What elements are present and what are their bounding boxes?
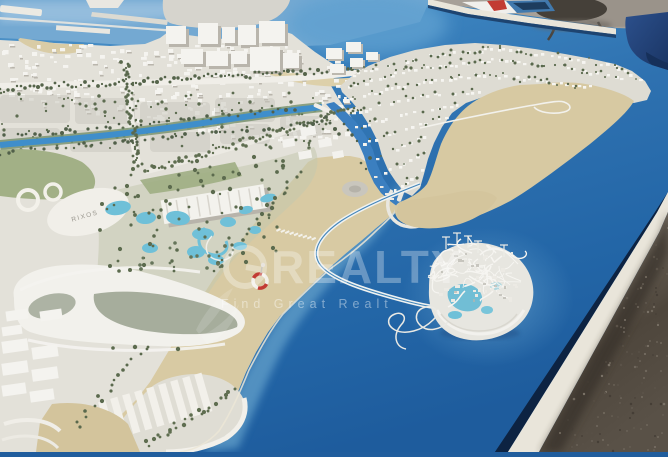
svg-text:Find Great Realt: Find Great Realt bbox=[221, 297, 393, 311]
svg-text:REALTY: REALTY bbox=[271, 241, 464, 293]
